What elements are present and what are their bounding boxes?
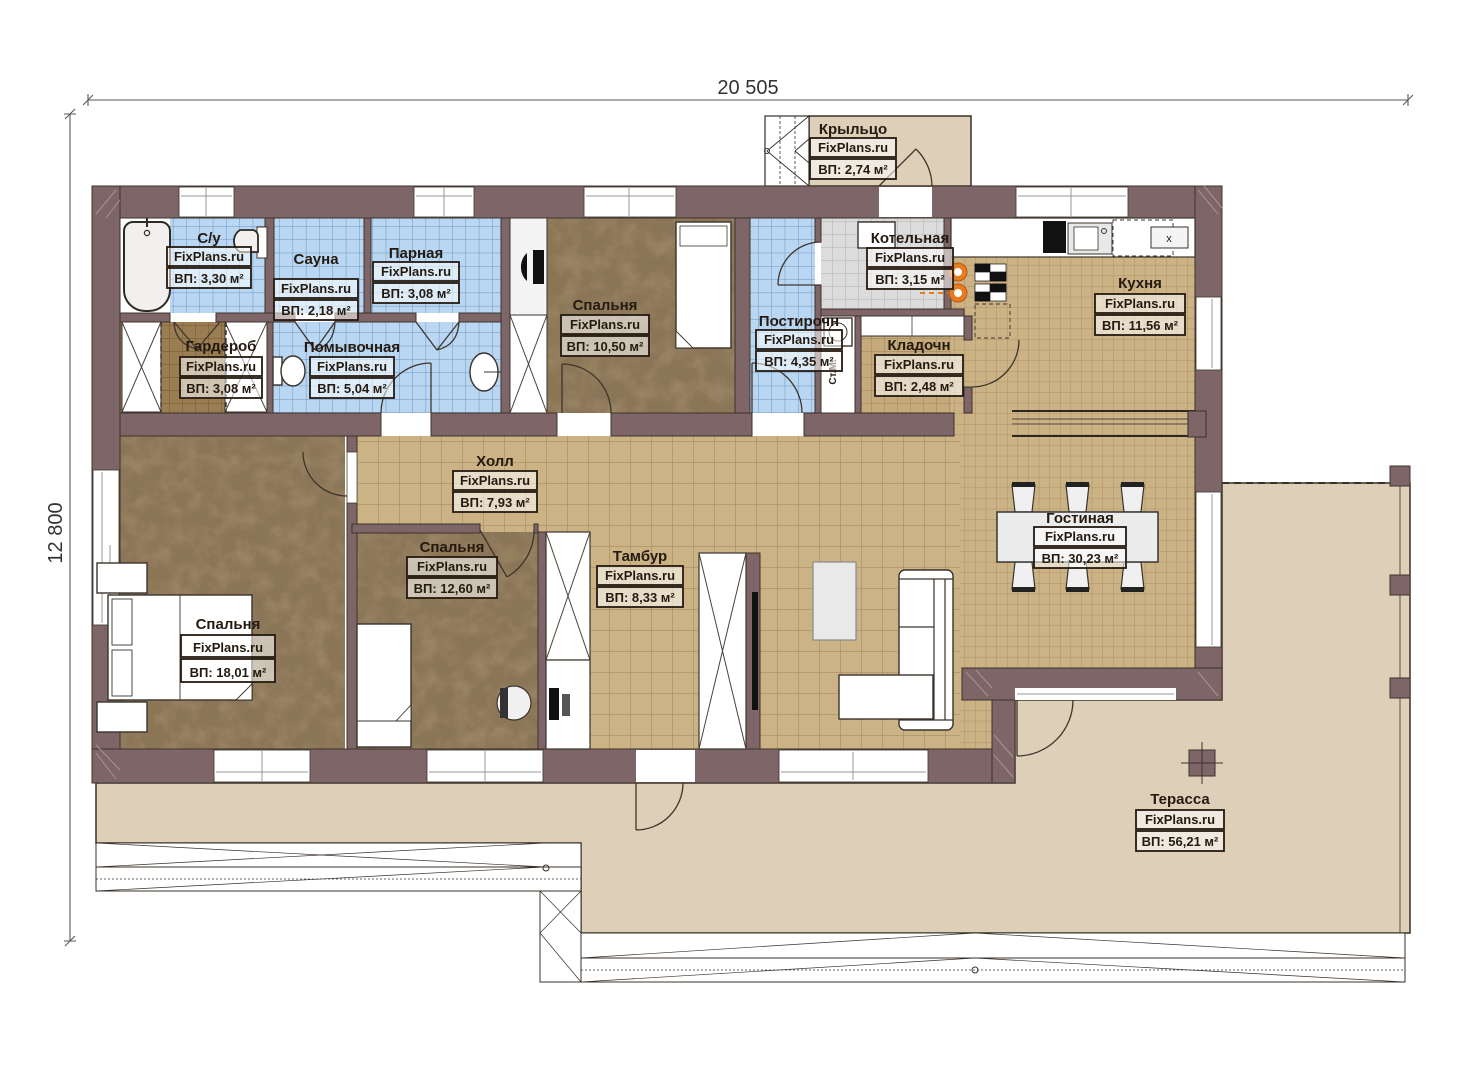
svg-text:Постирочн: Постирочн <box>759 313 839 330</box>
svg-text:Тамбур: Тамбур <box>613 548 667 565</box>
svg-text:FixPlans.ru: FixPlans.ru <box>174 249 244 264</box>
svg-text:20 505: 20 505 <box>717 77 778 99</box>
svg-text:FixPlans.ru: FixPlans.ru <box>381 264 451 279</box>
svg-text:Помывочная: Помывочная <box>304 339 400 356</box>
svg-text:Кладочн: Кладочн <box>887 337 950 354</box>
svg-text:FixPlans.ru: FixPlans.ru <box>186 359 256 374</box>
svg-text:ВП: 4,35 м²: ВП: 4,35 м² <box>764 354 834 369</box>
svg-text:ВП: 12,60 м²: ВП: 12,60 м² <box>414 581 491 596</box>
svg-text:ВП: 18,01 м²: ВП: 18,01 м² <box>190 665 267 680</box>
svg-text:Терасса: Терасса <box>1150 791 1210 808</box>
svg-text:FixPlans.ru: FixPlans.ru <box>281 281 351 296</box>
svg-text:Спальня: Спальня <box>196 616 261 633</box>
svg-text:ВП: 56,21 м²: ВП: 56,21 м² <box>1142 834 1219 849</box>
svg-text:FixPlans.ru: FixPlans.ru <box>417 559 487 574</box>
svg-text:FixPlans.ru: FixPlans.ru <box>818 140 888 155</box>
svg-text:ВП: 2,48 м²: ВП: 2,48 м² <box>884 379 954 394</box>
svg-text:ВП: 3,08 м²: ВП: 3,08 м² <box>186 381 256 396</box>
svg-text:ВП: 7,93 м²: ВП: 7,93 м² <box>460 495 530 510</box>
svg-text:ВП: 5,04 м²: ВП: 5,04 м² <box>317 381 387 396</box>
svg-text:Котельная: Котельная <box>871 230 950 247</box>
svg-text:Холл: Холл <box>476 453 514 470</box>
svg-text:Спальня: Спальня <box>573 297 638 314</box>
svg-text:FixPlans.ru: FixPlans.ru <box>1045 529 1115 544</box>
svg-text:FixPlans.ru: FixPlans.ru <box>193 640 263 655</box>
svg-text:x: x <box>1166 233 1172 245</box>
svg-text:С/у: С/у <box>197 230 221 247</box>
svg-text:ВП: 3,15 м²: ВП: 3,15 м² <box>875 272 945 287</box>
svg-text:ВП: 2,18 м²: ВП: 2,18 м² <box>281 303 351 318</box>
svg-text:FixPlans.ru: FixPlans.ru <box>570 317 640 332</box>
svg-text:FixPlans.ru: FixPlans.ru <box>875 250 945 265</box>
svg-text:FixPlans.ru: FixPlans.ru <box>317 359 387 374</box>
svg-text:FixPlans.ru: FixPlans.ru <box>1145 812 1215 827</box>
svg-text:Сауна: Сауна <box>293 251 339 268</box>
svg-text:12 800: 12 800 <box>45 502 67 563</box>
svg-text:Кухня: Кухня <box>1118 275 1162 292</box>
svg-text:ВП: 30,23 м²: ВП: 30,23 м² <box>1042 551 1119 566</box>
svg-text:Гардероб: Гардероб <box>186 338 257 355</box>
svg-text:ВП: 11,56 м²: ВП: 11,56 м² <box>1102 318 1179 333</box>
svg-text:Гостиная: Гостиная <box>1046 510 1114 527</box>
svg-text:FixPlans.ru: FixPlans.ru <box>764 332 834 347</box>
svg-text:FixPlans.ru: FixPlans.ru <box>605 568 675 583</box>
svg-text:FixPlans.ru: FixPlans.ru <box>1105 296 1175 311</box>
svg-text:ВП: 10,50 м²: ВП: 10,50 м² <box>567 339 644 354</box>
svg-text:ВП: 2,74 м²: ВП: 2,74 м² <box>818 162 888 177</box>
svg-text:FixPlans.ru: FixPlans.ru <box>460 473 530 488</box>
svg-text:Парная: Парная <box>389 245 443 262</box>
svg-text:FixPlans.ru: FixPlans.ru <box>884 357 954 372</box>
svg-text:ВП: 3,08 м²: ВП: 3,08 м² <box>381 286 451 301</box>
svg-text:Спальня: Спальня <box>420 539 485 556</box>
svg-text:ВП: 8,33 м²: ВП: 8,33 м² <box>605 590 675 605</box>
svg-text:Крыльцо: Крыльцо <box>819 121 887 138</box>
svg-text:ВП: 3,30 м²: ВП: 3,30 м² <box>174 271 244 286</box>
